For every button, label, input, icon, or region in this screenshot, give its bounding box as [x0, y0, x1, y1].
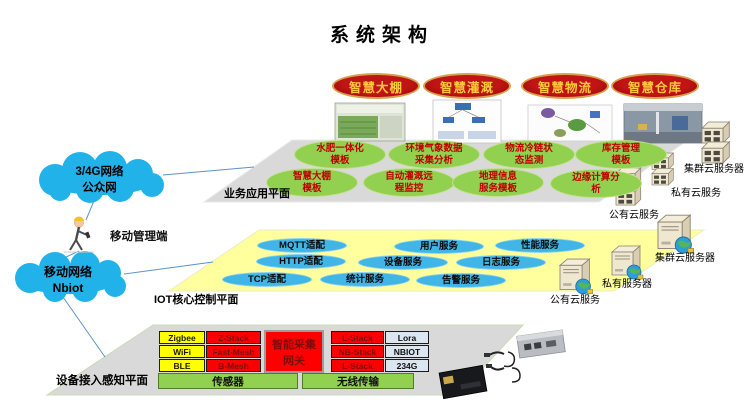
module-cold-chain: 物流冷链状 态监测 — [483, 140, 575, 169]
cluster-cloud-server2-label: 集群云服务器 — [655, 249, 715, 264]
cell-bmesh: B-Mesh — [206, 359, 261, 372]
module-env-weather: 环境气象数据 采集分析 — [388, 140, 480, 169]
thumbnail-warehouse-photo — [624, 104, 702, 143]
page-title: 系统架构 — [330, 20, 434, 47]
nbiot-cloud-label: 移动网络 Nbiot — [18, 264, 118, 296]
service-mqtt: MQTT适配 — [257, 238, 347, 253]
public-cloud-service2-icon — [560, 259, 593, 294]
thumbnail-irrigation-diagram — [433, 100, 501, 143]
service-alarm: 告警服务 — [416, 273, 506, 288]
cell-ble: BLE — [159, 359, 205, 372]
cell-fastmesh: Fast-Mesh — [206, 345, 261, 358]
cell-wifi: WiFi — [159, 345, 205, 358]
module-edge-computing: 边缘计算分 析 — [550, 169, 642, 198]
private-cloud-service-label: 私有云服务 — [671, 184, 721, 199]
mobile-admin-label: 移动管理端 — [110, 228, 168, 244]
cell-nbstack: NB-Stack — [331, 345, 384, 358]
mobile-admin-person-icon — [64, 217, 94, 253]
bar-wireless: 无线传输 — [302, 373, 414, 389]
thumbnail-smart-greenhouse — [335, 103, 405, 141]
service-tcp: TCP适配 — [222, 272, 312, 287]
device-plane-label: 设备接入感知平面 — [56, 372, 148, 388]
thumbnail-logistics-diagram — [528, 105, 612, 141]
public-network-cloud-label: 3/4G网络 公众网 — [42, 165, 157, 196]
public-cloud-service-label: 公有云服务 — [609, 206, 659, 221]
private-server-label: 私有服务器 — [602, 275, 652, 290]
gateway-device-photo — [517, 330, 566, 358]
service-device: 设备服务 — [358, 255, 448, 270]
module-inventory: 库存管理 模板 — [575, 140, 667, 169]
cell-nbiot: NBIOT — [385, 345, 429, 358]
cluster-cloud-server2-icon — [658, 215, 694, 253]
cables-photo — [484, 352, 520, 382]
module-auto-irrigation: 自动灌溉远 程监控 — [363, 168, 455, 197]
service-statistics: 统计服务 — [320, 272, 410, 287]
app-ellipse-smart-warehouse: 智慧仓库 — [611, 73, 699, 99]
cell-zstack: Z-Stack — [206, 331, 261, 344]
app-ellipse-smart-greenhouse: 智慧大棚 — [332, 73, 420, 99]
cluster-cloud-server-icon — [702, 122, 729, 163]
cell-lstack1: L-Stack — [331, 331, 384, 344]
service-performance: 性能服务 — [495, 238, 585, 253]
business-plane-label: 业务应用平面 — [224, 185, 290, 201]
cell-lora: Lora — [385, 331, 429, 344]
architecture-diagram: 系统架构 智慧大棚 智慧灌溉 智慧物流 智慧仓库 水肥一体化 模板 环境气象数据… — [0, 0, 750, 420]
public-cloud-service2-label: 公有云服务 — [550, 291, 600, 306]
iot-plane-label: IOT核心控制平面 — [154, 291, 238, 307]
smart-collection-gateway: 智能采集 网关 — [264, 330, 324, 373]
cell-234g: 234G — [385, 359, 429, 372]
service-log: 日志服务 — [456, 255, 546, 270]
cell-lstack2: L-Stack — [331, 359, 384, 372]
service-user: 用户服务 — [394, 239, 484, 254]
app-ellipse-smart-irrigation: 智慧灌溉 — [423, 73, 511, 99]
module-water-fertilizer: 水肥一体化 模板 — [294, 140, 386, 169]
bar-sensors: 传感器 — [158, 373, 298, 389]
module-gis-service: 地理信息 服务模板 — [452, 168, 544, 197]
service-http: HTTP适配 — [256, 254, 346, 269]
app-ellipse-smart-logistics: 智慧物流 — [521, 73, 609, 99]
cluster-cloud-server-label: 集群云服务器 — [684, 160, 744, 175]
cell-zigbee: Zigbee — [159, 331, 205, 344]
